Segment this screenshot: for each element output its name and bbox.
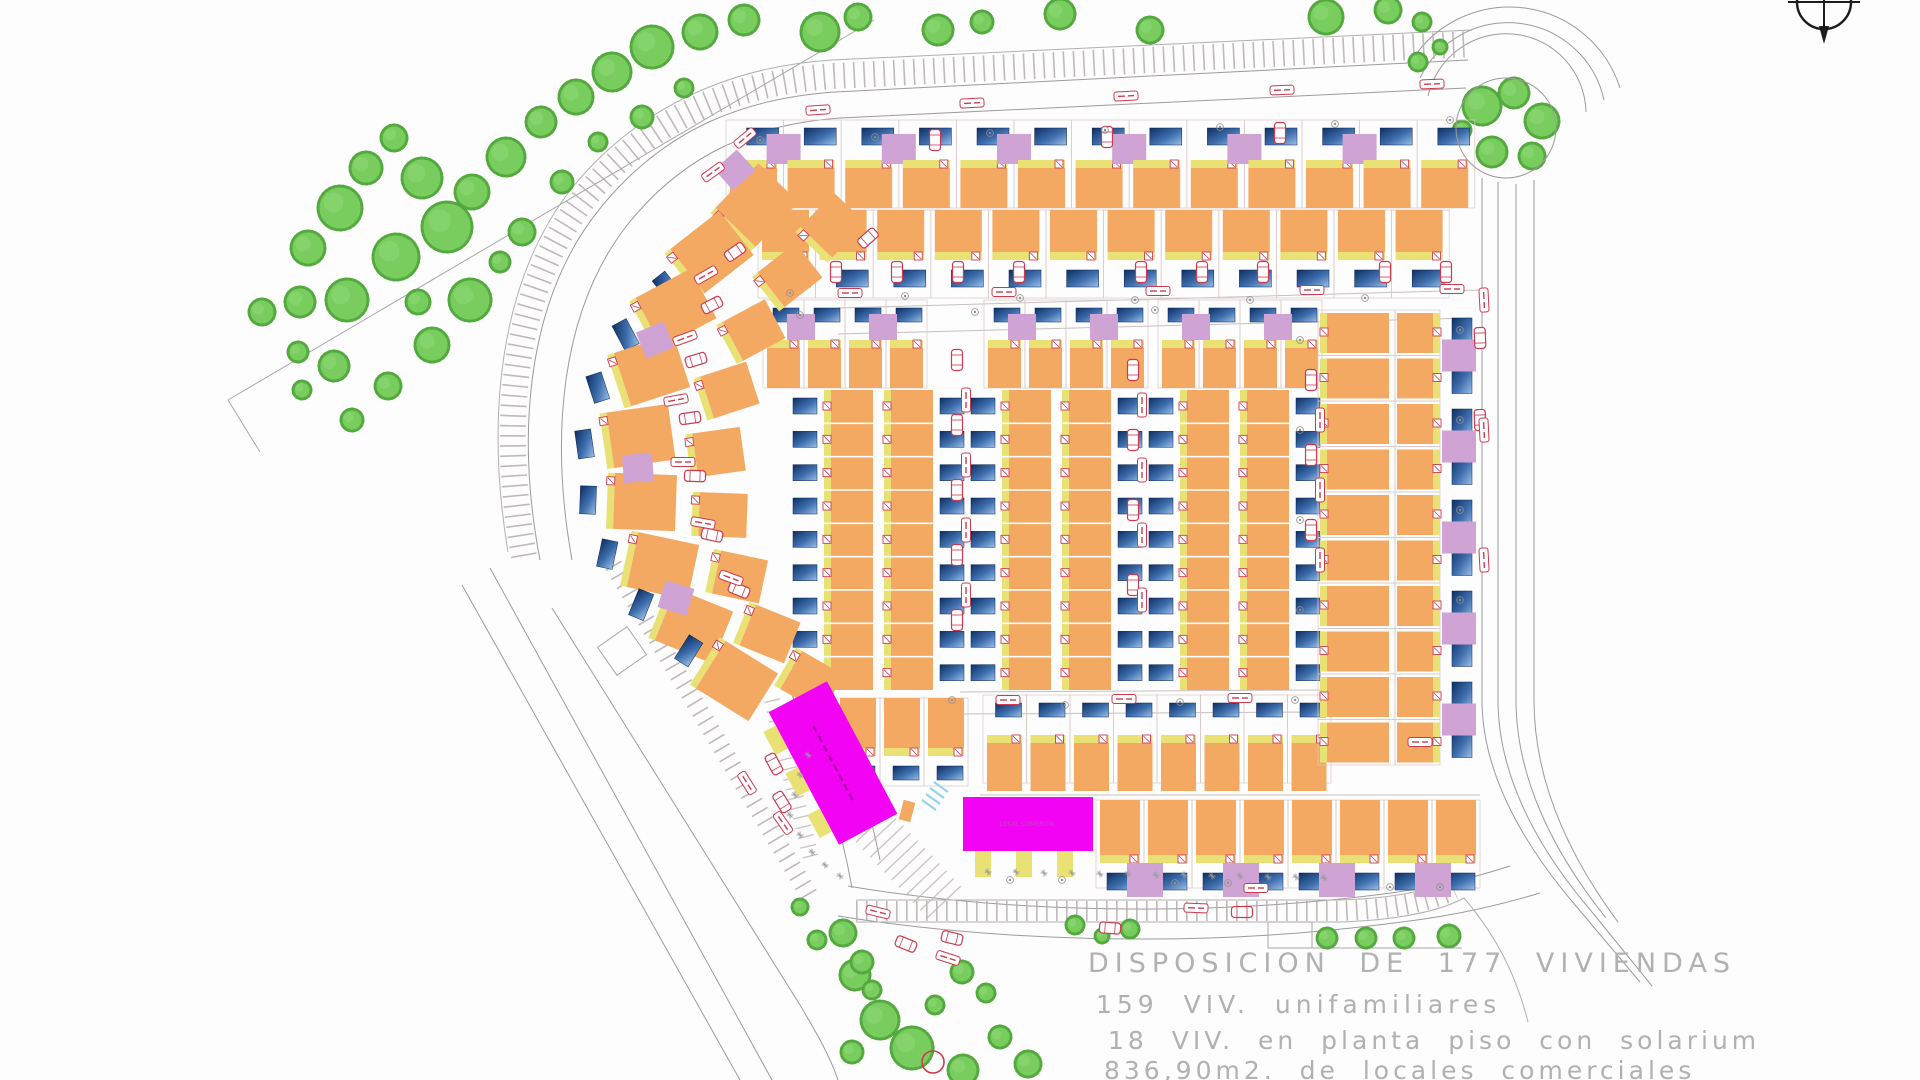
pool: [1035, 128, 1067, 145]
tree-highlight: [1503, 83, 1517, 97]
car-body: [764, 752, 784, 776]
car-icon: [894, 935, 918, 953]
tree-highlight: [454, 285, 473, 304]
plot-label: [1420, 79, 1444, 89]
tree-highlight: [409, 294, 420, 305]
car-icon: [679, 411, 701, 425]
terrace-strip: [1187, 390, 1229, 690]
garage: [1008, 314, 1036, 340]
pool: [1170, 703, 1196, 717]
utility-symbol-dot: [1219, 126, 1221, 128]
car-body: [1197, 262, 1208, 283]
house: [1248, 168, 1295, 208]
utility-symbol-dot: [1179, 701, 1181, 703]
plot-label-pill: [1479, 288, 1489, 312]
house: [935, 210, 982, 252]
tree-highlight: [1529, 109, 1544, 124]
pool: [971, 565, 995, 581]
plot-label-pill: [1300, 286, 1324, 295]
house: [1396, 210, 1443, 252]
car-icon: [1128, 360, 1139, 381]
plot-label: [1138, 393, 1147, 417]
pool: [1039, 703, 1065, 717]
utility-symbol-dot: [1134, 299, 1136, 301]
commercial-block-b: LOCAL COMERCIAL: [899, 797, 1093, 877]
pool: [1149, 565, 1173, 581]
plot-label: [1138, 588, 1147, 612]
annotation-line-3: 18 VIV. en planta piso con solarium: [1108, 1026, 1760, 1055]
car-icon: [772, 790, 792, 814]
house: [1280, 210, 1327, 252]
car-body: [1128, 430, 1139, 451]
plot-label-pill: [806, 105, 831, 116]
car-body: [772, 790, 792, 814]
tree-highlight: [591, 136, 599, 144]
house: [1340, 800, 1380, 855]
house: [1050, 210, 1097, 252]
plot-label-pill: [996, 696, 1020, 705]
tree-highlight: [1140, 21, 1152, 33]
terrace-cluster: [793, 390, 964, 690]
pool: [1296, 631, 1320, 647]
car-body: [1474, 327, 1486, 348]
row-cluster3-top: [1158, 300, 1322, 388]
house: [1397, 495, 1435, 535]
plot-label: [962, 583, 971, 607]
house: [1196, 800, 1236, 855]
plot-label-pill: [1138, 458, 1147, 482]
car-body: [1128, 360, 1139, 381]
tree-highlight: [1068, 919, 1076, 927]
right-columns: [1318, 310, 1476, 765]
car-icon: [764, 752, 784, 776]
kiosk: [899, 800, 916, 822]
tree-highlight: [291, 345, 300, 354]
tree-highlight: [844, 1044, 854, 1054]
utility-symbol-dot: [1064, 704, 1066, 706]
car-icon: [1128, 430, 1139, 451]
plot-label: [1138, 458, 1147, 482]
tree-highlight: [1320, 931, 1329, 940]
pool: [1257, 703, 1283, 717]
tree-highlight: [344, 412, 354, 422]
pool: [814, 308, 840, 322]
plot-label-pill: [1138, 588, 1147, 612]
tree-highlight: [865, 984, 873, 992]
pool: [971, 498, 995, 514]
annotation-line-2: 159 VIV. unifamiliares: [1096, 990, 1501, 1019]
house: [1327, 723, 1389, 763]
tree-highlight: [810, 934, 818, 942]
plot-label: [838, 289, 862, 298]
plot-label-pill: [1112, 695, 1136, 704]
tree-highlight: [634, 109, 644, 119]
pool: [1150, 128, 1182, 145]
car-icon: [684, 470, 705, 482]
plot-label-pill: [1316, 408, 1325, 432]
plot-label: [1300, 286, 1324, 295]
pool: [1296, 665, 1320, 681]
car-body: [1136, 262, 1147, 283]
pool: [1380, 128, 1412, 145]
site-plan-drawing: LOCAL COMERCIAL: [0, 0, 1920, 1080]
plot-label-pill: [1244, 884, 1268, 893]
tree-highlight: [1049, 4, 1063, 18]
pool: [628, 589, 653, 621]
house: [1327, 495, 1389, 535]
plot-label-pill: [838, 289, 862, 298]
garage: [1090, 314, 1118, 340]
tree-highlight: [493, 255, 502, 264]
pool: [586, 372, 610, 404]
promenade-mark: [822, 862, 829, 869]
car-icon: [1275, 123, 1286, 144]
promenade-mark: [1097, 871, 1104, 878]
car-body: [953, 262, 964, 283]
utility-symbol-dot: [951, 699, 953, 701]
tree-highlight: [1441, 928, 1451, 938]
pool: [793, 398, 817, 414]
pool: [1297, 270, 1329, 287]
plot-label: [1114, 91, 1138, 101]
plot-label: [1479, 548, 1489, 572]
tree-highlight: [252, 303, 264, 315]
tree-highlight: [324, 193, 344, 213]
plot-label: [1316, 548, 1325, 572]
house: [613, 473, 677, 531]
utility-symbol-dot: [1334, 123, 1336, 125]
car-icon: [1232, 907, 1253, 918]
central-parking-ladder: [872, 826, 948, 906]
tree-highlight: [323, 356, 337, 370]
plot-label-pill: [1114, 91, 1138, 101]
plot-label: [671, 458, 695, 467]
plot-label-pill: [1146, 287, 1170, 296]
pool: [1149, 431, 1173, 447]
pool: [971, 431, 995, 447]
plot-label: [1244, 884, 1268, 893]
car-icon: [940, 930, 963, 946]
car-icon: [1441, 262, 1452, 283]
pool: [793, 598, 817, 614]
garage: [997, 134, 1031, 164]
plot-label: [1228, 694, 1252, 703]
utility-symbol-dot: [1459, 419, 1461, 421]
terrace-strip: [1247, 390, 1289, 690]
pool: [793, 631, 817, 647]
car-icon: [684, 352, 707, 369]
pool: [896, 308, 922, 322]
pool: [940, 665, 964, 681]
house: [1244, 800, 1284, 855]
utility-symbol-dot: [1174, 882, 1176, 884]
utility-symbol-dot: [1009, 879, 1011, 881]
promenade-mark: [1041, 870, 1048, 877]
car-body: [1306, 370, 1317, 391]
tree-highlight: [598, 59, 615, 76]
house: [692, 427, 746, 477]
utility-symbol-dot: [1459, 509, 1461, 511]
tree-highlight: [295, 384, 303, 392]
tree-highlight: [428, 210, 451, 233]
car-icon: [1128, 500, 1139, 521]
utility-symbol-dot: [1294, 699, 1296, 701]
utility-symbol-dot: [1019, 297, 1021, 299]
pool: [940, 631, 964, 647]
car-body: [1380, 262, 1391, 283]
car-icon: [1197, 262, 1208, 283]
house: [1108, 210, 1155, 252]
car-icon: [1380, 262, 1391, 283]
terrace-cluster: [1149, 390, 1320, 690]
row-bottom-1: [983, 695, 1331, 791]
house: [1397, 359, 1435, 399]
left-road-line: [462, 585, 740, 1080]
house: [1397, 404, 1435, 444]
pool: [1149, 665, 1173, 681]
house: [960, 168, 1007, 208]
plot-label-pill: [663, 393, 688, 406]
plot-label-pill: [1440, 285, 1464, 294]
tree-highlight: [407, 164, 425, 182]
garage: [1442, 704, 1476, 736]
house: [884, 698, 920, 748]
tree-highlight: [1397, 931, 1406, 940]
tree-highlight: [979, 987, 987, 995]
pool: [1083, 703, 1109, 717]
annotation-line-4: 836,90m2. de locales comerciales: [1104, 1056, 1695, 1080]
tree-highlight: [1018, 1055, 1030, 1067]
car-icon: [952, 480, 963, 501]
pool: [971, 631, 995, 647]
car-body: [952, 415, 963, 436]
tree-highlight: [378, 377, 390, 389]
pool: [1118, 665, 1142, 681]
car-body: [1128, 500, 1139, 521]
north-arrow-icon: [1788, 0, 1860, 44]
utility-symbol-dot: [1299, 609, 1301, 611]
house: [890, 348, 923, 388]
house: [1327, 541, 1389, 581]
utility-symbol-dot: [1299, 519, 1301, 521]
plot-label: [1112, 695, 1136, 704]
house: [1292, 800, 1332, 855]
street-edge: [960, 690, 1320, 692]
promenade-mark: [797, 832, 804, 839]
car-icon: [892, 262, 903, 283]
plot-label-pill: [960, 98, 984, 108]
car-body: [1102, 127, 1113, 148]
house: [1306, 168, 1353, 208]
promenade-mark: [809, 849, 816, 856]
house: [1397, 450, 1435, 490]
plot-label-pill: [962, 388, 971, 412]
annotation-line-1: DISPOSICION DE 177 VIVIENDAS: [1088, 948, 1736, 979]
pool: [1067, 270, 1099, 287]
plot-label: [1408, 738, 1432, 747]
belt-boundary-line: [228, 400, 260, 452]
house: [1327, 450, 1389, 490]
tree-highlight: [833, 924, 845, 936]
car-icon: [1102, 127, 1113, 148]
utility-symbol-dot: [789, 292, 791, 294]
car-icon: [952, 415, 963, 436]
house: [1074, 743, 1109, 791]
house: [1327, 586, 1389, 626]
house: [1070, 348, 1103, 388]
garage: [869, 314, 897, 340]
pool: [1412, 270, 1444, 287]
plot-label-pill: [1479, 418, 1489, 442]
car-body: [1099, 922, 1121, 934]
terrace-strip: [1069, 390, 1111, 690]
tree-highlight: [512, 223, 524, 235]
tree-highlight: [289, 292, 303, 306]
plot-label: [962, 518, 971, 542]
tree-highlight: [384, 129, 396, 141]
car-icon: [930, 130, 941, 151]
house: [1203, 348, 1236, 388]
tree-highlight: [1313, 5, 1328, 20]
garage: [1442, 522, 1476, 554]
row-cluster2-top: [984, 300, 1148, 388]
pool: [1126, 703, 1152, 717]
pool: [971, 531, 995, 547]
plot-label-pill: [1228, 694, 1252, 703]
utility-symbol-dot: [799, 314, 801, 316]
tree-highlight: [974, 14, 984, 24]
pool: [1149, 631, 1173, 647]
utility-symbol-dot: [1104, 129, 1106, 131]
pool: [940, 465, 964, 481]
pool: [971, 398, 995, 414]
tree-highlight: [1415, 16, 1423, 24]
plot-label-pill: [935, 950, 961, 966]
pool: [793, 465, 817, 481]
tree-highlight: [677, 82, 685, 90]
tree-highlight: [1435, 42, 1441, 48]
garage: [622, 453, 654, 483]
plot-label: [663, 393, 688, 406]
garage: [1127, 863, 1163, 897]
plot-label-pill: [1408, 738, 1432, 747]
plot-label: [1316, 478, 1325, 502]
plot-label: [1479, 418, 1489, 442]
tree-highlight: [1123, 923, 1131, 931]
house: [1100, 800, 1140, 855]
car-icon: [953, 262, 964, 283]
plot-label-pill: [1138, 393, 1147, 417]
pool: [996, 703, 1022, 717]
plot-label: [1146, 287, 1170, 296]
pool: [793, 531, 817, 547]
tree-highlight: [687, 20, 702, 35]
plot-label: [1270, 85, 1294, 95]
car-icon: [952, 350, 963, 371]
car-body: [952, 480, 963, 501]
house: [1327, 313, 1389, 353]
commercial-block-a-body: [769, 681, 898, 844]
car-icon: [1128, 575, 1139, 596]
terrace-strip: [1009, 390, 1051, 690]
row-top-1: [726, 120, 1475, 208]
plot-label-pill: [737, 770, 757, 795]
house: [1364, 168, 1411, 208]
tree-highlight: [954, 964, 964, 974]
plot-label-pill: [962, 583, 971, 607]
plot-label-pill: [1316, 478, 1325, 502]
site-plan-canvas: LOCAL COMERCIAL DISPOSICION DE 177 VIVIE…: [0, 0, 1920, 1080]
car-icon: [1474, 327, 1486, 348]
house: [1223, 210, 1270, 252]
plot-label: [737, 770, 757, 795]
housing-layer: [575, 120, 1480, 897]
garage: [1442, 431, 1476, 463]
tree-highlight: [992, 1029, 1002, 1039]
pool: [971, 598, 995, 614]
plot-label: [1440, 285, 1464, 294]
utility-symbol-dot: [759, 139, 761, 141]
commercial-block-b-label: LOCAL COMERCIAL: [1000, 821, 1057, 828]
pool: [1149, 398, 1173, 414]
house: [1165, 210, 1212, 252]
house: [987, 743, 1022, 791]
car-icon: [1258, 262, 1269, 283]
utility-symbol-dot: [989, 132, 991, 134]
garage: [1442, 613, 1476, 645]
garage: [1415, 863, 1451, 897]
garage: [1182, 314, 1210, 340]
house: [1327, 677, 1389, 717]
tree-highlight: [1411, 56, 1419, 64]
terrace-cluster: [971, 390, 1142, 690]
garage: [1343, 134, 1377, 164]
pool: [1209, 308, 1235, 322]
pool: [971, 465, 995, 481]
pool: [971, 665, 995, 681]
tree-highlight: [492, 144, 509, 161]
utility-symbol-dot: [1154, 309, 1156, 311]
pool: [1035, 308, 1061, 322]
house: [1248, 743, 1283, 791]
house: [849, 348, 882, 388]
plot-label: [996, 696, 1020, 705]
row-cluster1-top: [763, 300, 927, 388]
car-body: [952, 545, 963, 566]
right-avenue-line: [1534, 180, 1618, 922]
plot-label-pill: [1184, 903, 1208, 913]
car-body: [684, 470, 705, 482]
plot-label: [960, 98, 984, 108]
house: [1148, 800, 1188, 855]
car-body: [1014, 262, 1025, 283]
garage: [1112, 134, 1146, 164]
tree-highlight: [563, 85, 578, 100]
terrace-strip: [891, 390, 933, 690]
plot-label-pill: [671, 458, 695, 467]
house: [1205, 743, 1240, 791]
utility-symbol-dot: [1389, 886, 1391, 888]
plot-label-pill: [1479, 548, 1489, 572]
utility-symbol-dot: [1299, 339, 1301, 341]
tree-highlight: [331, 285, 350, 304]
commercial-porch: [1016, 851, 1032, 877]
plot-label-pill: [1138, 523, 1147, 547]
car-icon: [1099, 922, 1121, 934]
pool: [940, 398, 964, 414]
car-icon: [1306, 445, 1317, 466]
pool: [1149, 598, 1173, 614]
